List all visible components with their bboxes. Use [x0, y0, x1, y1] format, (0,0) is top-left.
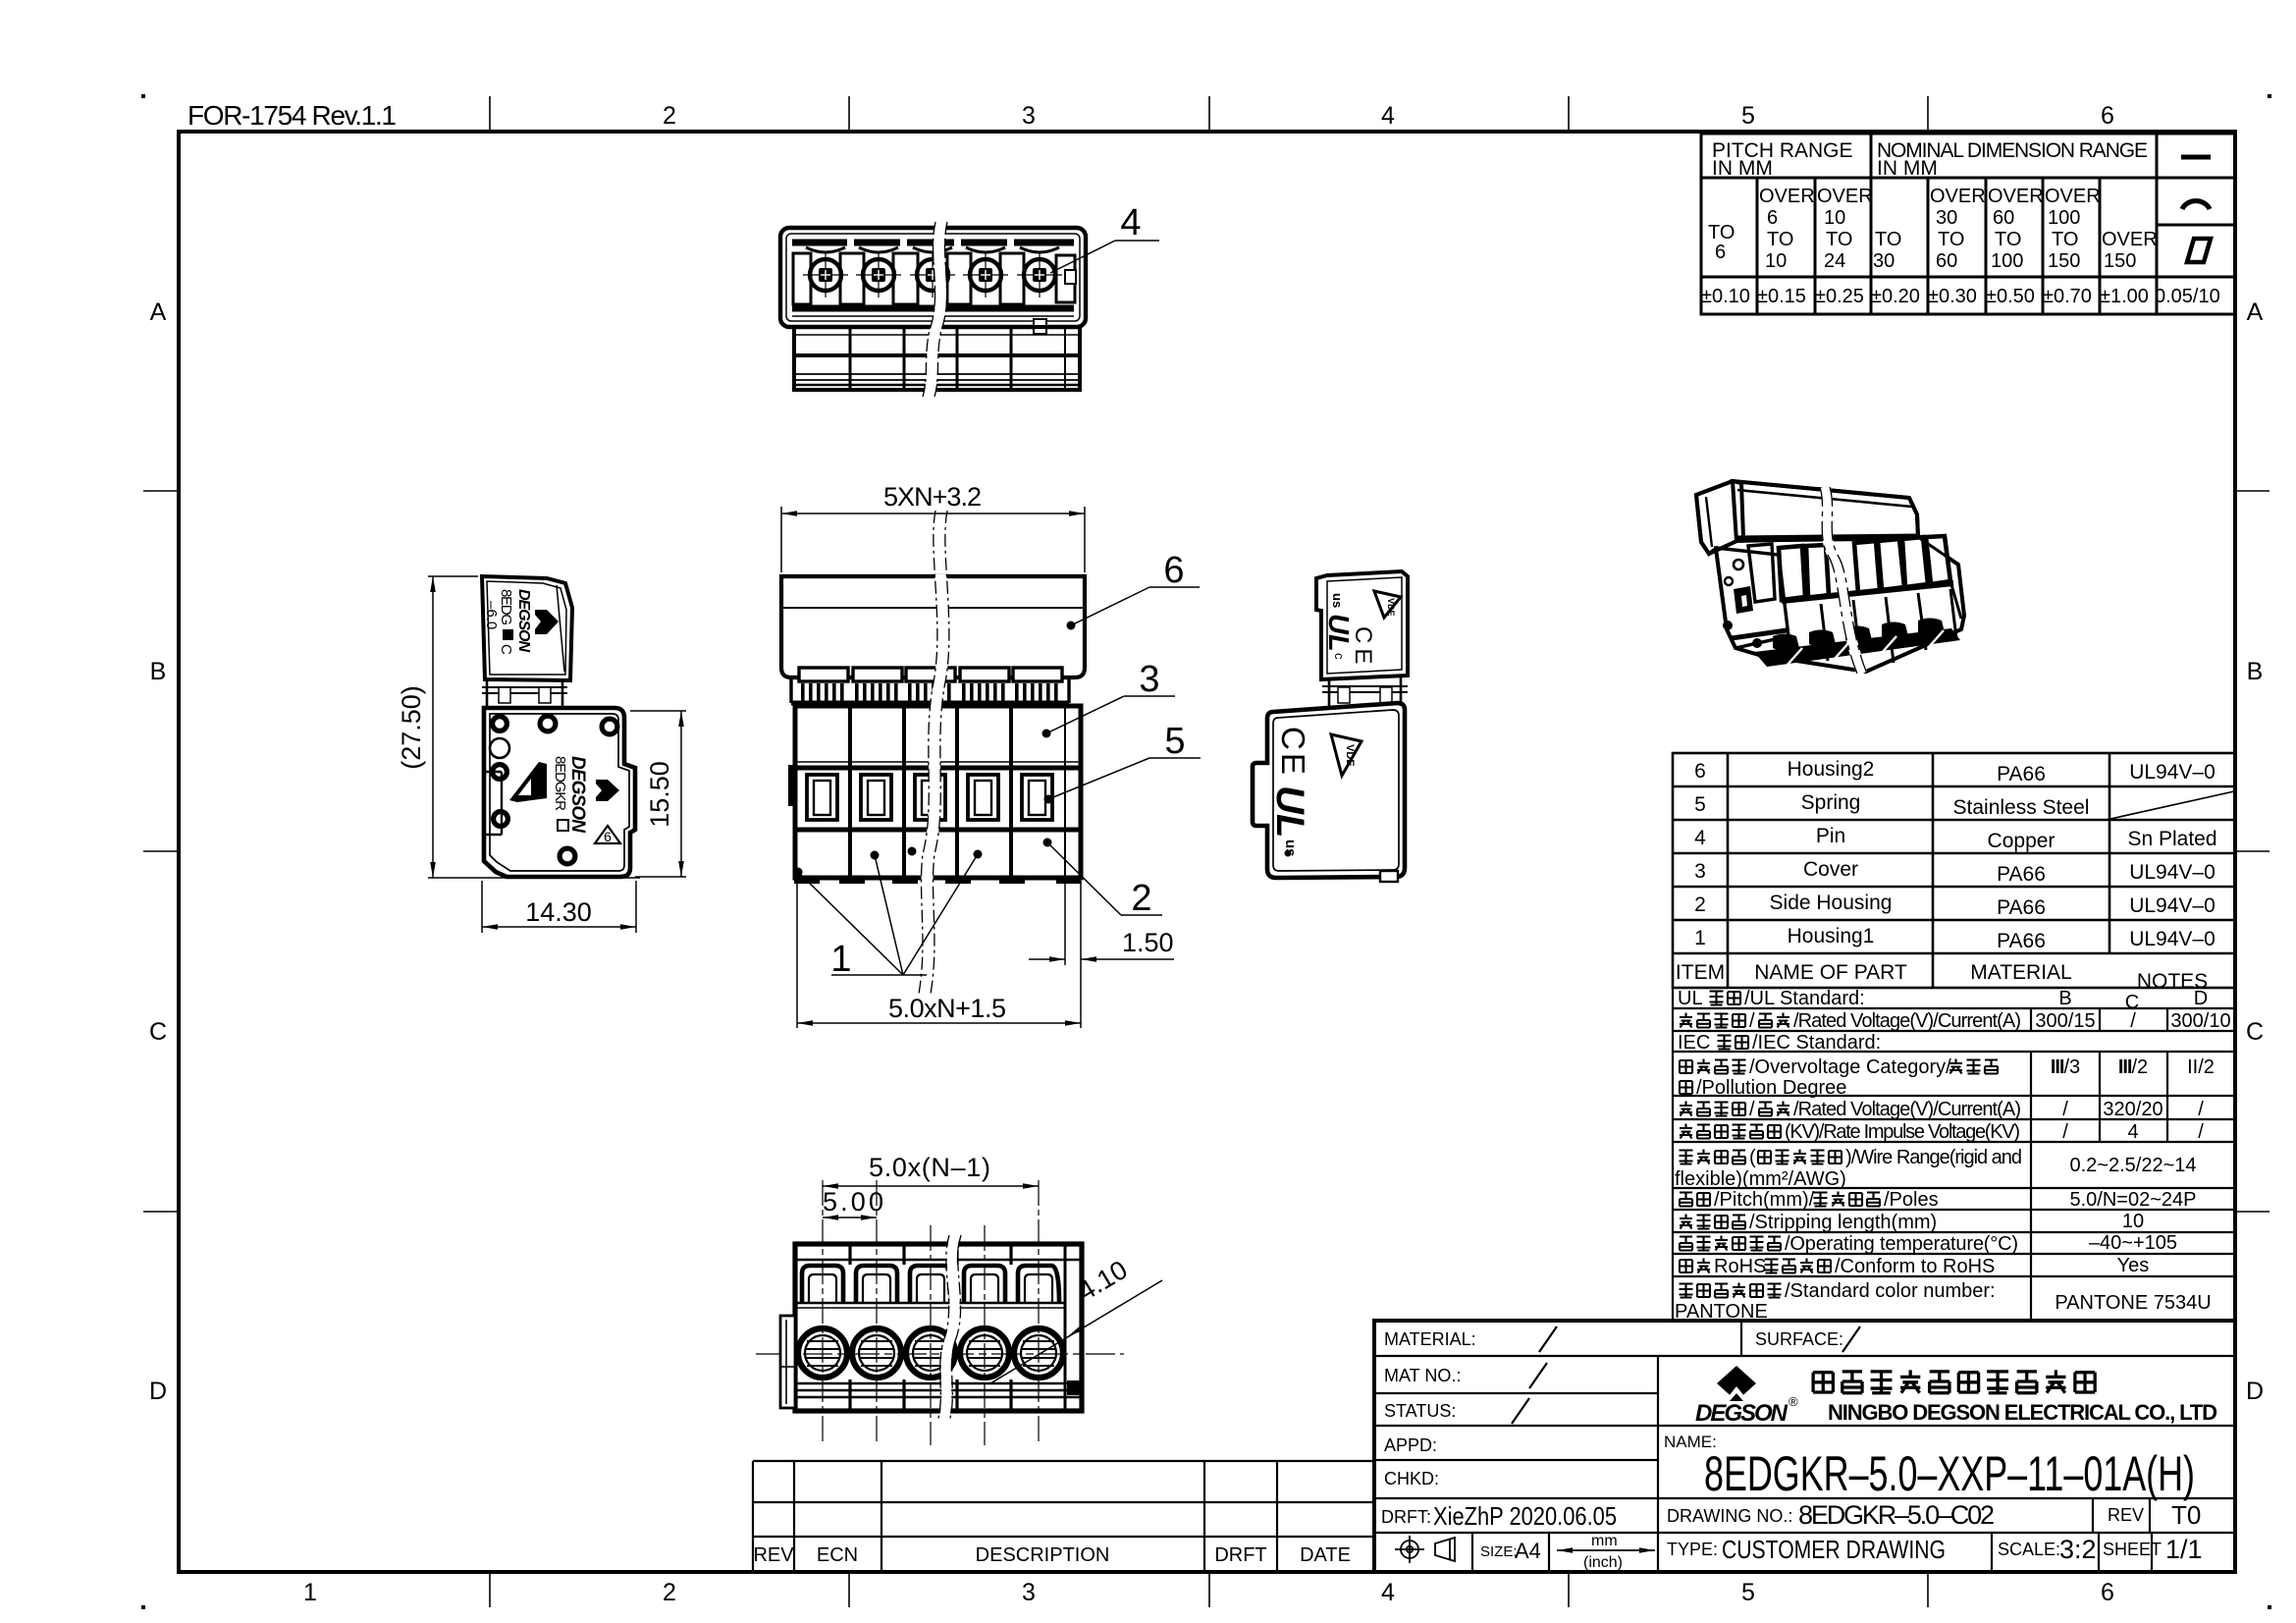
svg-text:0.05/10: 0.05/10 [2155, 286, 2220, 307]
svg-text:OVER: OVER [2102, 229, 2158, 250]
svg-text:(27.50): (27.50) [397, 685, 426, 770]
svg-text:6: 6 [604, 829, 612, 844]
svg-text:±0.50: ±0.50 [1986, 286, 2035, 307]
svg-text:5: 5 [1694, 793, 1706, 816]
svg-text:DRFT: DRFT [1214, 1544, 1266, 1566]
svg-text:5.0x(N–1): 5.0x(N–1) [869, 1153, 990, 1182]
svg-text:4: 4 [1120, 202, 1141, 243]
svg-text:/IEC Standard:: /IEC Standard: [1752, 1032, 1881, 1054]
svg-text:UL: UL [1322, 614, 1354, 652]
svg-text:UL94V–0: UL94V–0 [2129, 928, 2216, 950]
svg-text:/Conform to RoHS: /Conform to RoHS [1835, 1256, 1995, 1277]
svg-text:IN MM: IN MM [1877, 157, 1938, 180]
svg-text:FOR-1754 Rev.1.1: FOR-1754 Rev.1.1 [187, 100, 397, 131]
svg-text:/Pollution Degree: /Pollution Degree [1696, 1077, 1846, 1099]
svg-text:3:2: 3:2 [2059, 1535, 2097, 1564]
svg-text:SURFACE:: SURFACE: [1755, 1329, 1843, 1349]
svg-text:4: 4 [2127, 1121, 2138, 1143]
svg-text:10: 10 [1765, 250, 1787, 272]
svg-text:/: / [1749, 1099, 1755, 1120]
svg-text:3: 3 [1022, 1579, 1036, 1606]
svg-text:±0.30: ±0.30 [1928, 286, 1977, 307]
svg-text:OVER: OVER [1930, 186, 1986, 207]
svg-text:III/2: III/2 [2118, 1056, 2148, 1078]
svg-text:/: / [2198, 1121, 2204, 1143]
svg-text:300/15: 300/15 [2035, 1010, 2095, 1032]
svg-text:C: C [2246, 1018, 2264, 1046]
svg-text:Sn Plated: Sn Plated [2127, 828, 2216, 850]
svg-text:5: 5 [1741, 1579, 1755, 1606]
svg-text:SIZE:: SIZE: [1480, 1543, 1518, 1560]
svg-text:2: 2 [663, 1579, 676, 1606]
svg-text:1.50: 1.50 [1122, 928, 1174, 957]
svg-text:mm: mm [1591, 1533, 1618, 1549]
svg-text:Housing1: Housing1 [1788, 925, 1875, 947]
svg-text:IN MM: IN MM [1712, 157, 1773, 180]
svg-text:5.0/N=02~24P: 5.0/N=02~24P [2070, 1189, 2197, 1211]
svg-text:SHEET: SHEET [2103, 1540, 2162, 1559]
svg-text:PA66: PA66 [1997, 763, 2046, 785]
svg-text:60: 60 [1993, 207, 2014, 229]
svg-text:®: ® [1789, 1394, 1798, 1409]
svg-text:A: A [2247, 298, 2264, 326]
svg-text:/: / [2130, 1010, 2136, 1032]
svg-text:24: 24 [1824, 250, 1845, 272]
svg-text:Spring: Spring [1801, 791, 1861, 814]
svg-text:DRFT:: DRFT: [1381, 1507, 1431, 1527]
svg-text:Side Housing: Side Housing [1770, 892, 1893, 914]
svg-text:C: C [498, 644, 514, 655]
svg-text:PA66: PA66 [1997, 930, 2046, 952]
svg-text:/Rated Voltage(V)/Current(A): /Rated Voltage(V)/Current(A) [1793, 1010, 2021, 1032]
svg-text:DESCRIPTION: DESCRIPTION [976, 1544, 1110, 1566]
svg-text:(inch): (inch) [1583, 1554, 1623, 1571]
svg-text:B: B [150, 658, 167, 685]
svg-text:15.50: 15.50 [645, 761, 674, 828]
svg-text:±0.15: ±0.15 [1757, 286, 1806, 307]
svg-text:8EDGKR–5.0–C02: 8EDGKR–5.0–C02 [1798, 1500, 1995, 1530]
svg-text:NINGBO DEGSON ELECTRICAL CO.,: NINGBO DEGSON ELECTRICAL CO., LTD [1828, 1400, 2217, 1425]
svg-text:14.30: 14.30 [525, 897, 592, 927]
svg-text:OVER: OVER [1817, 186, 1873, 207]
svg-text:8EDGKR: 8EDGKR [552, 756, 568, 811]
svg-text:/Rated Voltage(V)/Current(A): /Rated Voltage(V)/Current(A) [1793, 1099, 2021, 1120]
svg-text:II/2: II/2 [2187, 1056, 2215, 1078]
svg-text:/: / [1749, 1010, 1755, 1032]
svg-text:4: 4 [1381, 102, 1395, 130]
svg-text:1: 1 [1694, 927, 1706, 949]
svg-text:/Standard color number:: /Standard color number: [1785, 1280, 1996, 1302]
svg-text:OVER: OVER [2045, 186, 2101, 207]
svg-text:Cover: Cover [1803, 858, 1858, 881]
svg-text:5.00: 5.00 [823, 1187, 883, 1217]
svg-text:2: 2 [1694, 893, 1706, 916]
svg-text:30: 30 [1873, 250, 1895, 272]
svg-text:UL94V–0: UL94V–0 [2129, 894, 2216, 917]
svg-text:/Poles: /Poles [1884, 1189, 1939, 1211]
svg-text:c: c [1332, 653, 1347, 660]
svg-text:D: D [2194, 988, 2208, 1009]
svg-text:TO: TO [1938, 229, 1964, 250]
svg-text:DEGSON: DEGSON [567, 756, 588, 834]
svg-text:Stainless Steel: Stainless Steel [1953, 796, 2090, 819]
svg-text:OVER: OVER [1988, 186, 2044, 207]
svg-text:±0.20: ±0.20 [1871, 286, 1920, 307]
svg-text:3: 3 [1139, 659, 1159, 700]
svg-text:/UL Standard:: /UL Standard: [1744, 988, 1865, 1009]
svg-text:B: B [2058, 988, 2071, 1009]
svg-text:ECN: ECN [817, 1544, 858, 1566]
svg-text:PA66: PA66 [1997, 896, 2046, 919]
svg-text:MAT NO.:: MAT NO.: [1384, 1366, 1461, 1385]
svg-text:150: 150 [2048, 250, 2080, 272]
svg-text:UL: UL [1268, 785, 1311, 838]
svg-text:XieZhP 2020.06.05: XieZhP 2020.06.05 [1433, 1501, 1617, 1531]
svg-text:4: 4 [1694, 827, 1706, 849]
svg-text:/Pitch(mm)/: /Pitch(mm)/ [1714, 1189, 1815, 1211]
svg-text:±0.25: ±0.25 [1815, 286, 1864, 307]
svg-text:320/20: 320/20 [2103, 1099, 2163, 1120]
svg-text:/Stripping length(mm): /Stripping length(mm) [1749, 1212, 1937, 1233]
svg-text:TO: TO [1995, 229, 2021, 250]
svg-text:TYPE:: TYPE: [1667, 1540, 1718, 1559]
svg-text:C: C [149, 1018, 167, 1046]
svg-text:10: 10 [1824, 207, 1845, 229]
svg-text:6: 6 [1694, 760, 1706, 783]
svg-text:±0.10: ±0.10 [1701, 286, 1750, 307]
svg-text:VDE: VDE [1386, 598, 1396, 617]
svg-text:APPD:: APPD: [1384, 1435, 1437, 1455]
svg-text:–6.0: –6.0 [483, 601, 500, 629]
svg-text:5: 5 [1741, 102, 1755, 130]
svg-text:0.2~2.5/22~14: 0.2~2.5/22~14 [2069, 1155, 2196, 1176]
svg-text:MATERIAL:: MATERIAL: [1384, 1329, 1476, 1349]
svg-text:5.0xN+1.5: 5.0xN+1.5 [888, 994, 1006, 1023]
svg-text:10: 10 [2122, 1211, 2144, 1232]
svg-text:A: A [150, 298, 167, 326]
svg-text:6: 6 [1767, 207, 1778, 229]
svg-text:T0: T0 [2171, 1500, 2201, 1530]
svg-text:TO: TO [1767, 229, 1793, 250]
svg-text:TO: TO [1826, 229, 1852, 250]
svg-text:D: D [2246, 1378, 2264, 1405]
svg-text:ITEM: ITEM [1676, 961, 1725, 984]
svg-text:DRAWING NO.:: DRAWING NO.: [1667, 1506, 1792, 1526]
svg-text:±1.00: ±1.00 [2100, 286, 2149, 307]
svg-text:6: 6 [2101, 1579, 2114, 1606]
svg-text:UL94V–0: UL94V–0 [2129, 861, 2216, 884]
svg-text:NAME OF PART: NAME OF PART [1754, 961, 1907, 984]
svg-text:2: 2 [1131, 878, 1151, 919]
svg-text:3: 3 [1694, 860, 1706, 883]
svg-text:60: 60 [1936, 250, 1957, 272]
svg-text:)/Wire Range(rigid and: )/Wire Range(rigid and [1845, 1147, 2022, 1168]
svg-text:/: / [2062, 1099, 2068, 1120]
svg-text:IEC: IEC [1678, 1032, 1716, 1054]
svg-text:TO: TO [1708, 222, 1735, 243]
svg-text:REV: REV [753, 1544, 794, 1566]
svg-text:CUSTOMER DRAWING: CUSTOMER DRAWING [1722, 1535, 1946, 1564]
svg-text:Housing2: Housing2 [1788, 758, 1875, 781]
svg-text:(: ( [1749, 1147, 1756, 1168]
svg-text:3: 3 [1022, 102, 1036, 130]
svg-text:us: us [1330, 593, 1345, 608]
svg-text:30: 30 [1936, 207, 1957, 229]
svg-text:A4: A4 [1515, 1539, 1541, 1563]
svg-text:VDE: VDE [1344, 744, 1356, 767]
svg-text:Pin: Pin [1816, 825, 1845, 847]
svg-text:1/1: 1/1 [2165, 1535, 2203, 1564]
svg-text:D: D [149, 1378, 167, 1405]
svg-text:1: 1 [830, 939, 851, 980]
svg-text:DEGSON: DEGSON [1695, 1400, 1789, 1427]
svg-text:/Operating temperature(°C): /Operating temperature(°C) [1785, 1233, 2018, 1255]
svg-text:300/10: 300/10 [2170, 1010, 2230, 1032]
svg-text:PA66: PA66 [1997, 863, 2046, 886]
svg-text:CHKD:: CHKD: [1384, 1469, 1439, 1488]
svg-text:(KV)/Rate Impulse Voltage(KV): (KV)/Rate Impulse Voltage(KV) [1785, 1121, 2020, 1143]
svg-text:TO: TO [1875, 229, 1901, 250]
svg-text:DEGSON: DEGSON [515, 589, 532, 652]
svg-text:5XN+3.2: 5XN+3.2 [883, 482, 982, 512]
svg-text:flexible)(mm²/AWG): flexible)(mm²/AWG) [1675, 1168, 1846, 1190]
svg-text:OVER: OVER [1759, 186, 1815, 207]
svg-text:100: 100 [2048, 207, 2080, 229]
svg-text:5: 5 [1164, 721, 1185, 762]
svg-text:SCALE:: SCALE: [1998, 1540, 2060, 1559]
svg-text:6: 6 [1715, 242, 1726, 263]
svg-text:Yes: Yes [2117, 1255, 2150, 1276]
svg-text:DATE: DATE [1300, 1544, 1351, 1566]
svg-text:PANTONE 7534U: PANTONE 7534U [2055, 1292, 2211, 1314]
svg-text:UL94V–0: UL94V–0 [2129, 761, 2216, 784]
svg-text:REV: REV [2108, 1505, 2144, 1525]
svg-text:6: 6 [1163, 550, 1184, 591]
svg-text:CE: CE [1350, 626, 1376, 669]
svg-text:/Overvoltage Category/: /Overvoltage Category/ [1749, 1056, 1951, 1078]
svg-text:6: 6 [2101, 102, 2114, 130]
svg-text:8EDGKR–5.0–XXP–11–01A(H): 8EDGKR–5.0–XXP–11–01A(H) [1704, 1446, 2195, 1501]
svg-text:2: 2 [663, 102, 676, 130]
svg-text:TO: TO [2052, 229, 2078, 250]
svg-text:B: B [2247, 658, 2264, 685]
svg-text:/: / [2198, 1099, 2204, 1120]
svg-text:±0.70: ±0.70 [2043, 286, 2092, 307]
svg-text:4: 4 [1381, 1579, 1395, 1606]
svg-text:–40~+105: –40~+105 [2089, 1232, 2177, 1254]
svg-text:MATERIAL: MATERIAL [1970, 961, 2071, 984]
svg-text:III/3: III/3 [2051, 1056, 2080, 1078]
svg-text:1: 1 [303, 1579, 317, 1606]
svg-text:STATUS:: STATUS: [1384, 1401, 1456, 1421]
svg-text:UL: UL [1678, 988, 1707, 1009]
svg-text:100: 100 [1991, 250, 2023, 272]
svg-text:CE: CE [1275, 727, 1311, 778]
svg-text:Copper: Copper [1988, 830, 2056, 852]
svg-text:RoHS: RoHS [1714, 1256, 1766, 1277]
svg-text:/: / [2062, 1121, 2068, 1143]
svg-text:150: 150 [2104, 250, 2136, 272]
